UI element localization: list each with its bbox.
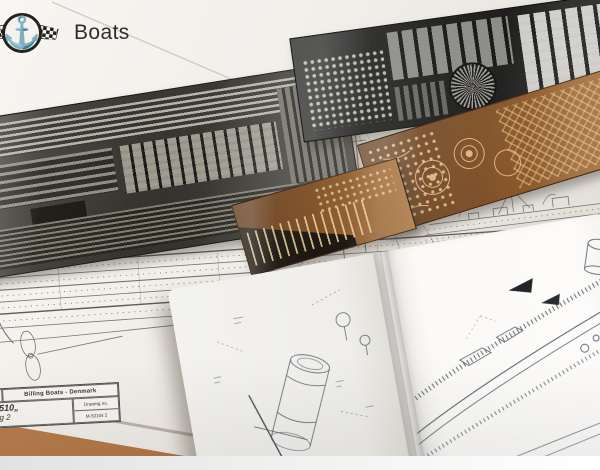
title-block-drawing-no: Drawing no. M-50104 2 [73,396,120,423]
etched-slat-parts [386,16,513,81]
funnel-drawing [269,351,331,454]
etched-small-parts [394,80,448,121]
anchor-emblem-ring: ⚓ [2,13,42,53]
funnel-drawing-small [584,238,600,276]
plan-title-block: Billing Boats - Denmark anic „510„ Drawi… [0,382,121,430]
propeller-drawing [19,312,128,382]
photo-border-bottom [0,456,600,470]
brand-text: Boats [74,21,130,45]
photo-of-model-kit-contents: Billing Boats - Denmark anic „510„ Drawi… [0,0,600,470]
etched-rivet-grid [301,49,392,132]
billing-boats-logo: ⚓ Boats [0,13,130,53]
title-block-model: anic „510„ Drawing 2 [0,398,74,429]
drawing-no-value: M-50104 2 [74,409,119,423]
anchor-icon: ⚓ [3,17,42,48]
